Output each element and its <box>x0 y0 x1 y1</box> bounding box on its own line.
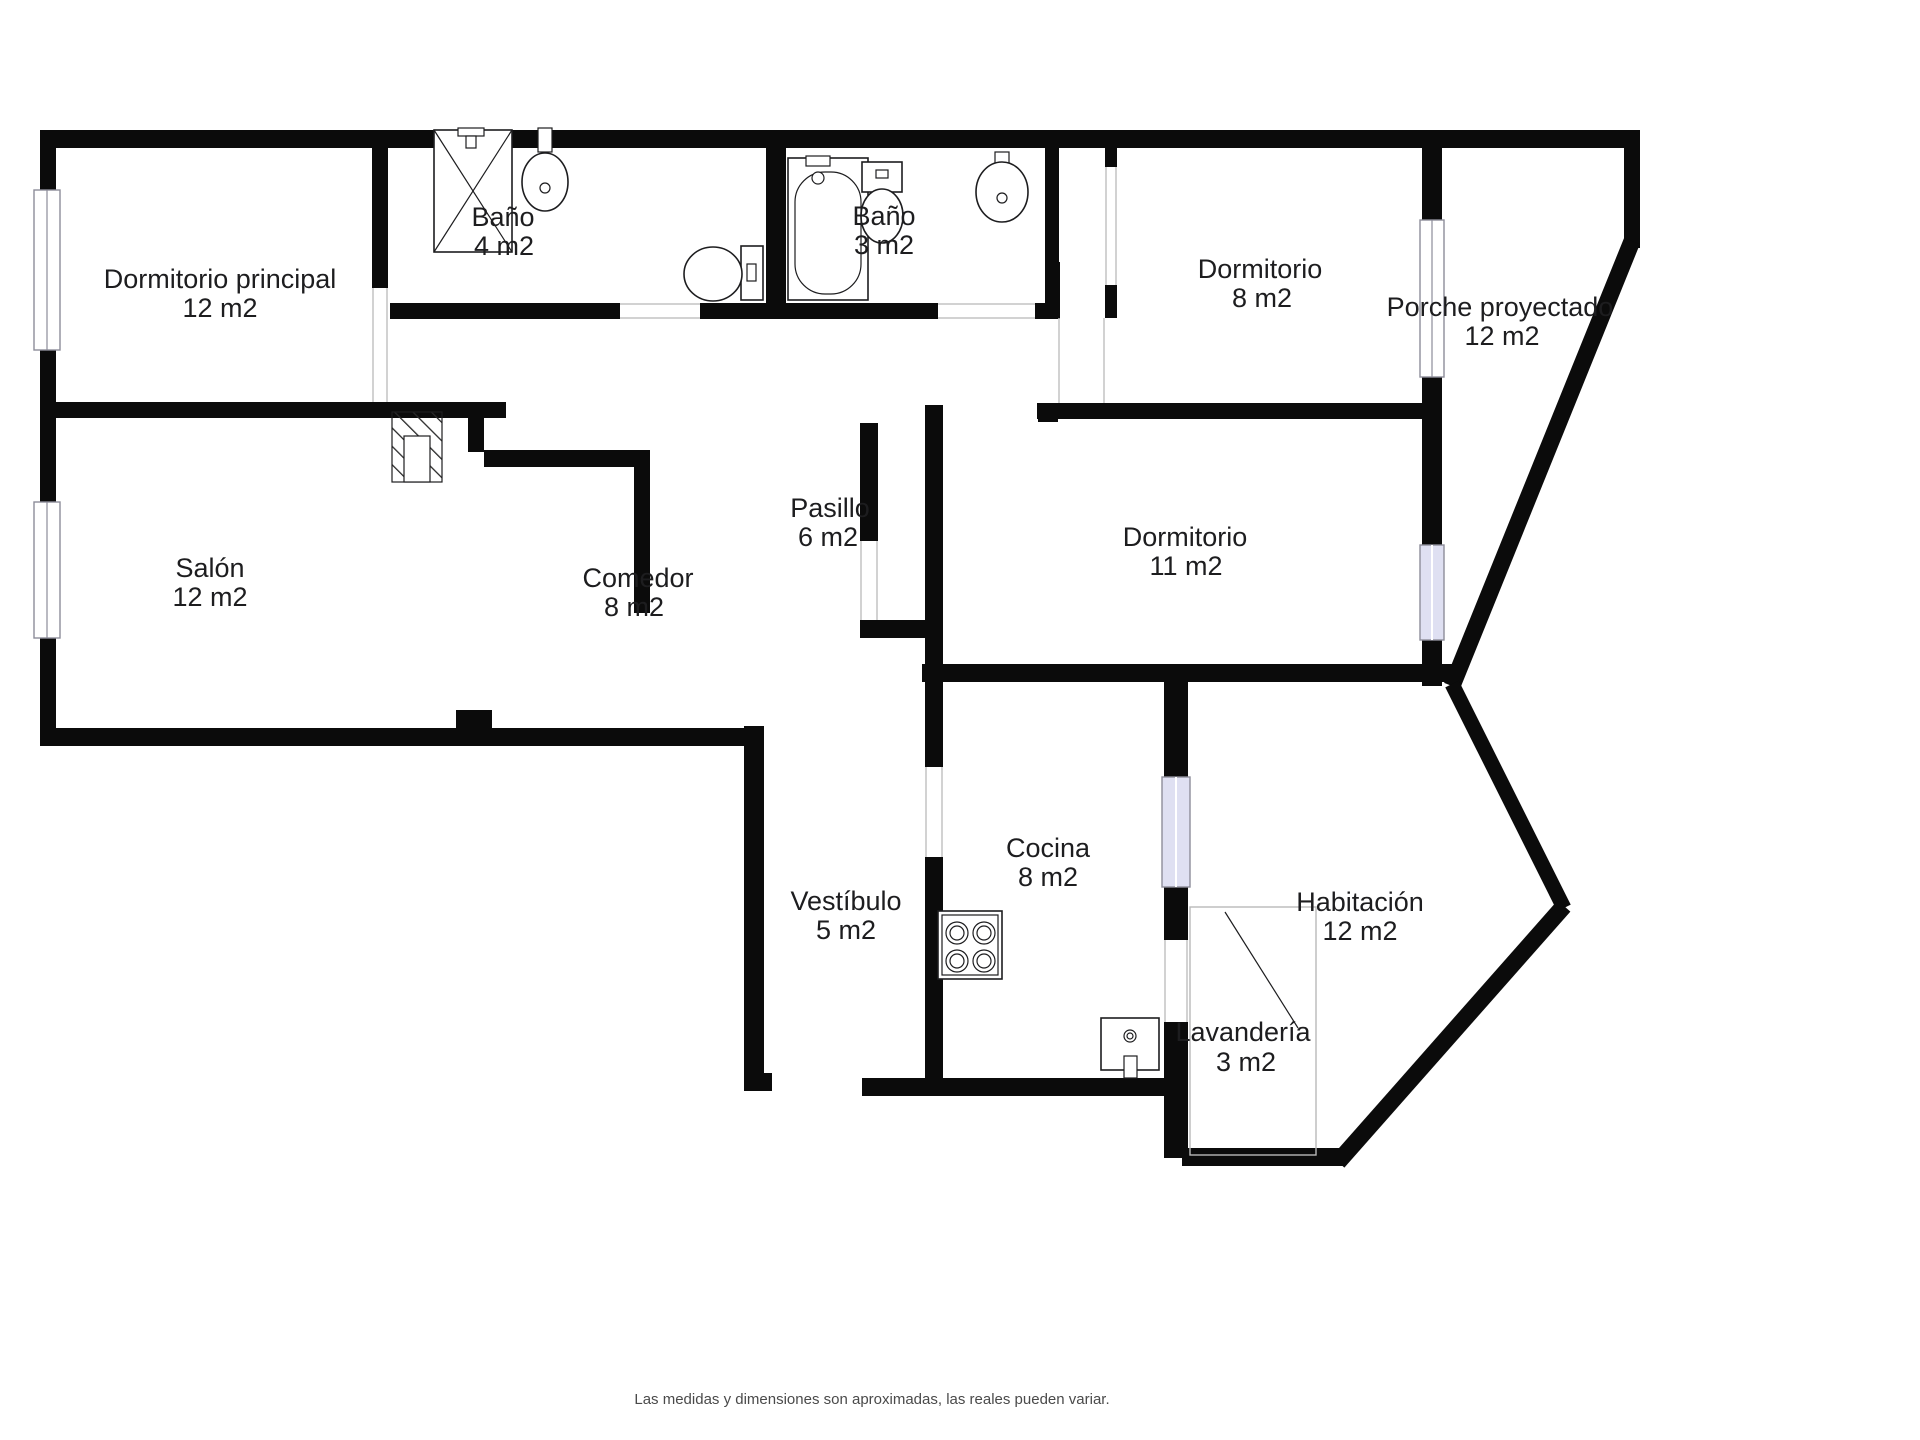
window-dormitorio-principal <box>34 190 60 350</box>
door-leaf-icon <box>1225 912 1298 1028</box>
stove-icon <box>938 911 1002 979</box>
room-label-dormitorio-principal: Dormitorio principal <box>104 264 337 294</box>
window-salon <box>34 502 60 638</box>
room-area-bano-3: 3 m2 <box>854 230 914 260</box>
room-label-lavanderia: Lavandería <box>1175 1017 1311 1047</box>
room-area-salon: 12 m2 <box>172 582 247 612</box>
room-label-vestibulo: Vestíbulo <box>790 886 901 916</box>
room-area-vestibulo: 5 m2 <box>816 915 876 945</box>
room-label-bano-4: Baño <box>471 202 534 232</box>
room-label-dormitorio-8: Dormitorio <box>1198 254 1323 284</box>
room-label-comedor: Comedor <box>582 563 693 593</box>
sink-icon <box>976 152 1028 222</box>
window-cocina-habitacion <box>1162 777 1190 887</box>
kitchen-sink-icon <box>1101 1018 1159 1078</box>
room-label-habitacion: Habitación <box>1296 887 1424 917</box>
room-label-salon: Salón <box>175 553 244 583</box>
room-label-pasillo: Pasillo <box>790 493 870 523</box>
room-label-cocina: Cocina <box>1006 833 1091 863</box>
floor-plan-drawing: Dormitorio principal 12 m2 Baño 4 m2 Bañ… <box>0 0 1920 1440</box>
room-area-porche: 12 m2 <box>1464 321 1539 351</box>
room-area-pasillo: 6 m2 <box>798 522 858 552</box>
room-area-bano-4: 4 m2 <box>474 231 534 261</box>
footer-disclaimer: Las medidas y dimensiones son aproximada… <box>634 1391 1109 1408</box>
window-dormitorio-11-porche <box>1420 545 1444 640</box>
room-label-bano-3: Baño <box>852 201 915 231</box>
toilet-icon <box>684 246 763 301</box>
room-label-dormitorio-11: Dormitorio <box>1123 522 1248 552</box>
room-area-comedor: 8 m2 <box>604 592 664 622</box>
floor-plan-page: Dormitorio principal 12 m2 Baño 4 m2 Bañ… <box>0 0 1920 1440</box>
room-area-dormitorio-principal: 12 m2 <box>182 293 257 323</box>
room-labels: Dormitorio principal 12 m2 Baño 4 m2 Bañ… <box>104 201 1614 1077</box>
room-label-porche: Porche proyectado <box>1387 292 1614 322</box>
chimney-hatch-icon <box>392 412 442 482</box>
room-area-cocina: 8 m2 <box>1018 862 1078 892</box>
room-area-dormitorio-11: 11 m2 <box>1149 551 1222 581</box>
room-area-dormitorio-8: 8 m2 <box>1232 283 1292 313</box>
room-area-lavanderia: 3 m2 <box>1216 1047 1276 1077</box>
room-area-habitacion: 12 m2 <box>1322 916 1397 946</box>
fixtures <box>392 128 1316 1155</box>
